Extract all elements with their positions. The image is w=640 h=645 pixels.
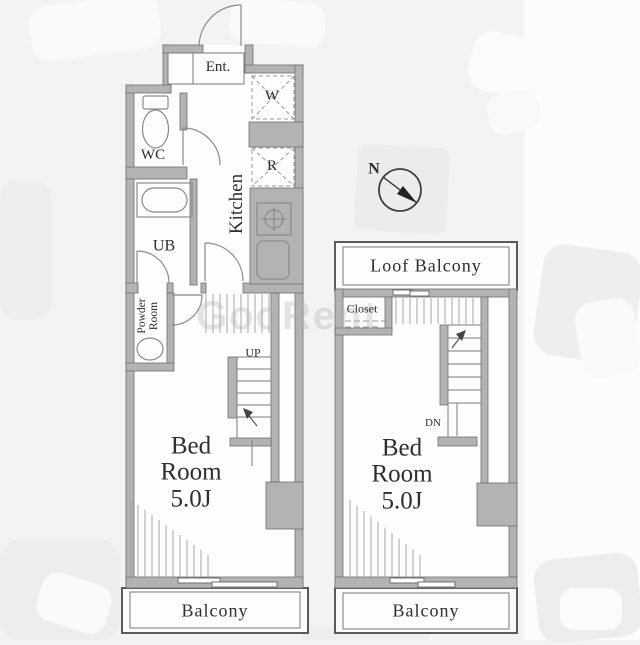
label-bedroom-2f: Bed Room 5.0J [371,436,432,515]
label-bedroom-1f-line3: 5.0J [160,486,221,512]
compass [379,169,421,211]
wall [481,297,488,483]
label-washer: W [265,89,279,105]
label-bedroom-2f-line2: Room [371,462,432,488]
label-bedroom-2f-line1: Bed [371,436,432,462]
wall [190,179,197,285]
label-bedroom-1f-line2: Room [160,460,221,486]
wall [180,93,187,130]
wall [243,283,303,293]
label-wc: WC [141,148,165,164]
label-powder-line2: Room [148,298,160,333]
wall [385,297,392,330]
label-bedroom-1f-line1: Bed [160,434,221,460]
label-balcony-2f: Balcony [393,602,460,621]
floorplan-canvas: GooRent Ent. WC UB Powder Room Kitchen W… [0,0,640,640]
compass-needle [397,186,417,203]
label-ub: UB [153,239,175,256]
label-roof-balcony: Loof Balcony [370,257,481,276]
window-sash [212,582,277,587]
label-bedroom-1f: Bed Room 5.0J [160,434,221,513]
wall [126,85,171,93]
label-balcony-1f: Balcony [182,602,249,621]
window-sash [410,291,429,296]
label-powder-line1: Powder [136,298,148,333]
wall [126,363,174,371]
wall [245,65,303,73]
wall [201,283,206,293]
label-stairs-up: UP [245,347,260,360]
stair-handrail [228,357,237,418]
window-sash [393,290,412,295]
wall [167,293,174,363]
stair-handrail [440,325,448,405]
label-kitchen: Kitchen [227,174,247,234]
label-closet: Closet [347,303,378,316]
label-bedroom-2f-line3: 5.0J [371,488,432,514]
label-entrance: Ent. [206,60,231,76]
kitchen-counter [250,188,303,284]
window-sash [418,582,455,587]
wall [163,45,203,53]
pillar-duct [477,483,517,526]
label-fridge: R [267,159,277,175]
label-stairs-down: DN [425,418,441,430]
wall [126,167,187,179]
wall [167,283,173,293]
pillar-duct [266,482,303,529]
wall [509,289,517,577]
wall [126,283,138,293]
floorplan-drawing [0,0,640,640]
shelf-niche [249,122,303,147]
wall [271,293,279,482]
wall [230,438,271,446]
wall [335,328,392,335]
label-powder-room: Powder Room [136,298,160,333]
wall [126,85,134,588]
entry-door-swing [199,5,241,46]
wall [438,437,477,446]
label-north: N [368,162,380,179]
